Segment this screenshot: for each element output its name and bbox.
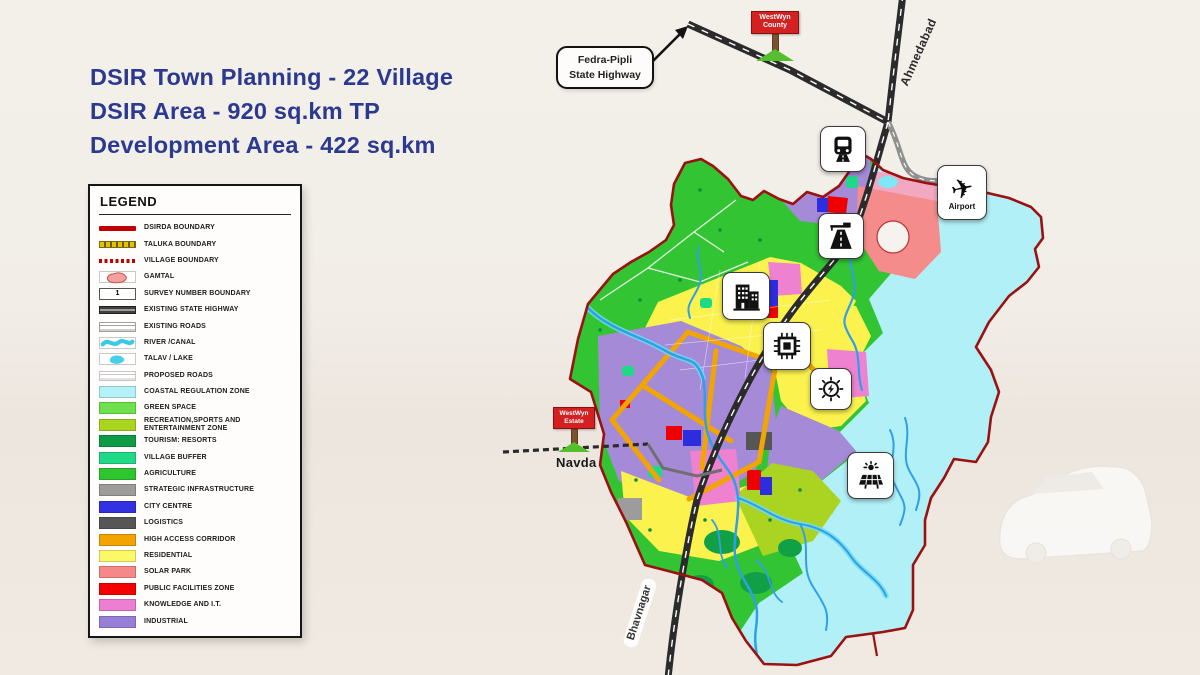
legend-swatch-fill	[99, 386, 136, 398]
legend-item: HIGH ACCESS CORRIDOR	[99, 531, 291, 547]
legend-item: GAMTAL	[99, 269, 291, 285]
legend-item: SOLAR PARK	[99, 564, 291, 580]
legend-item-label: TALUKA BOUNDARY	[144, 241, 216, 249]
legend-swatch-fill	[99, 517, 136, 529]
county-sign-line-1: WestWyn	[755, 14, 795, 22]
callout-line-2: State Highway	[561, 68, 649, 83]
legend-item-label: EXISTING STATE HIGHWAY	[144, 306, 239, 314]
legend-item: KNOWLEDGE AND I.T.	[99, 597, 291, 613]
legend-swatch-fill	[99, 599, 136, 611]
legend-item: STRATEGIC INFRASTRUCTURE	[99, 482, 291, 498]
legend-item-label: RIVER /CANAL	[144, 339, 196, 347]
legend-swatch-roads	[99, 322, 136, 332]
legend-item: RIVER /CANAL	[99, 335, 291, 351]
airplane-glyph: ✈	[948, 172, 976, 204]
legend-item: 1SURVEY NUMBER BOUNDARY	[99, 286, 291, 302]
highway-callout: Fedra-Pipli State Highway	[556, 46, 654, 89]
legend-item-label: STRATEGIC INFRASTRUCTURE	[144, 486, 254, 494]
legend-swatch-dash-fine	[99, 259, 136, 263]
legend-item: PROPOSED ROADS	[99, 368, 291, 384]
label-navda: Navda	[556, 455, 597, 470]
legend-item: RESIDENTIAL	[99, 548, 291, 564]
legend-swatch-wave	[99, 337, 136, 349]
county-sign-line-2: County	[755, 22, 795, 30]
title-line-1: DSIR Town Planning - 22 Village	[90, 60, 510, 94]
legend-swatch-fill	[99, 566, 136, 578]
legend-item-label: GREEN SPACE	[144, 404, 196, 412]
legend-swatch-highway	[99, 306, 136, 314]
legend-item-label: DSIRDA BOUNDARY	[144, 224, 215, 232]
ghost-car	[1000, 466, 1152, 563]
sign-mound	[756, 49, 794, 61]
legend-swatch-survey-box: 1	[99, 288, 136, 300]
legend-swatch-fill	[99, 452, 136, 464]
sign-mound	[558, 442, 590, 452]
legend-item: PUBLIC FACILITIES ZONE	[99, 581, 291, 597]
legend-item-label: HIGH ACCESS CORRIDOR	[144, 536, 235, 544]
legend-swatch-fill	[99, 583, 136, 595]
legend-item-label: VILLAGE BOUNDARY	[144, 257, 219, 265]
legend-item: EXISTING ROADS	[99, 318, 291, 334]
legend-swatch-roads	[99, 371, 136, 381]
legend-item: VILLAGE BUFFER	[99, 449, 291, 465]
legend-item-label: TOURISM: RESORTS	[144, 437, 217, 445]
legend-item-label: EXISTING ROADS	[144, 323, 206, 331]
legend-panel: LEGEND DSIRDA BOUNDARYTALUKA BOUNDARYVIL…	[88, 184, 302, 638]
legend-item-label: GAMTAL	[144, 273, 174, 281]
legend-item: GREEN SPACE	[99, 400, 291, 416]
solar-farm-icon	[847, 452, 894, 499]
legend-swatch-dash-square	[99, 241, 136, 248]
callout-line-1: Fedra-Pipli	[561, 53, 649, 68]
legend-swatch-fill	[99, 501, 136, 513]
legend-item-label: TALAV / LAKE	[144, 355, 193, 363]
train-icon	[820, 126, 866, 172]
legend-swatch-fill	[99, 468, 136, 480]
legend-swatch-lake	[99, 353, 136, 365]
legend-item-label: RECREATION,SPORTS AND ENTERTAINMENT ZONE	[144, 417, 291, 433]
legend-item: DSIRDA BOUNDARY	[99, 220, 291, 236]
legend-heading: LEGEND	[99, 193, 291, 215]
legend-item: TALAV / LAKE	[99, 351, 291, 367]
legend-item-label: KNOWLEDGE AND I.T.	[144, 601, 221, 609]
legend-items: DSIRDA BOUNDARYTALUKA BOUNDARYVILLAGE BO…	[99, 220, 291, 630]
legend-item-label: LOGISTICS	[144, 519, 183, 527]
legend-item-label: SOLAR PARK	[144, 568, 191, 576]
legend-swatch-fill	[99, 484, 136, 496]
legend-item-label: RESIDENTIAL	[144, 552, 192, 560]
westwyn-county-sign: WestWyn County	[751, 11, 799, 61]
legend-swatch-fill	[99, 435, 136, 447]
legend-item-label: COASTAL REGULATION ZONE	[144, 388, 250, 396]
legend-swatch-fill	[99, 550, 136, 562]
legend-item: TALUKA BOUNDARY	[99, 236, 291, 252]
semiconductor-chip-icon	[763, 322, 811, 370]
legend-swatch-fill	[99, 534, 136, 546]
legend-item-label: AGRICULTURE	[144, 470, 196, 478]
power-energy-icon	[810, 368, 852, 410]
city-buildings-icon	[722, 272, 770, 320]
legend-swatch-line-thick	[99, 222, 136, 234]
legend-item-label: VILLAGE BUFFER	[144, 454, 207, 462]
legend-item: CITY CENTRE	[99, 499, 291, 515]
estate-sign-line-1: WestWyn	[557, 410, 591, 418]
legend-item: TOURISM: RESORTS	[99, 433, 291, 449]
title-line-3: Development Area - 422 sq.km	[90, 128, 510, 162]
legend-swatch-fill	[99, 616, 136, 628]
highway-icon	[818, 213, 864, 259]
legend-swatch-fill	[99, 402, 136, 414]
legend-item-label: PROPOSED ROADS	[144, 372, 213, 380]
westwyn-estate-sign: WestWyn Estate	[553, 407, 595, 452]
legend-item: EXISTING STATE HIGHWAY	[99, 302, 291, 318]
legend-item-label: SURVEY NUMBER BOUNDARY	[144, 290, 251, 298]
title-line-2: DSIR Area - 920 sq.km TP	[90, 94, 510, 128]
page: { "title": { "color": "#2b3990", "lines"…	[0, 0, 1200, 675]
legend-swatch-fill	[99, 419, 136, 431]
legend-item: VILLAGE BOUNDARY	[99, 253, 291, 269]
legend-item: RECREATION,SPORTS AND ENTERTAINMENT ZONE	[99, 417, 291, 433]
legend-swatch-blob	[99, 271, 136, 283]
legend-item-label: PUBLIC FACILITIES ZONE	[144, 585, 234, 593]
legend-item-label: CITY CENTRE	[144, 503, 192, 511]
airport-icon: ✈ Airport	[937, 165, 987, 220]
page-title: DSIR Town Planning - 22 Village DSIR Are…	[90, 60, 510, 162]
estate-sign-line-2: Estate	[557, 418, 591, 426]
legend-item: LOGISTICS	[99, 515, 291, 531]
legend-item: COASTAL REGULATION ZONE	[99, 384, 291, 400]
legend-item-label: INDUSTRIAL	[144, 618, 188, 626]
legend-item: AGRICULTURE	[99, 466, 291, 482]
legend-item: INDUSTRIAL	[99, 613, 291, 629]
